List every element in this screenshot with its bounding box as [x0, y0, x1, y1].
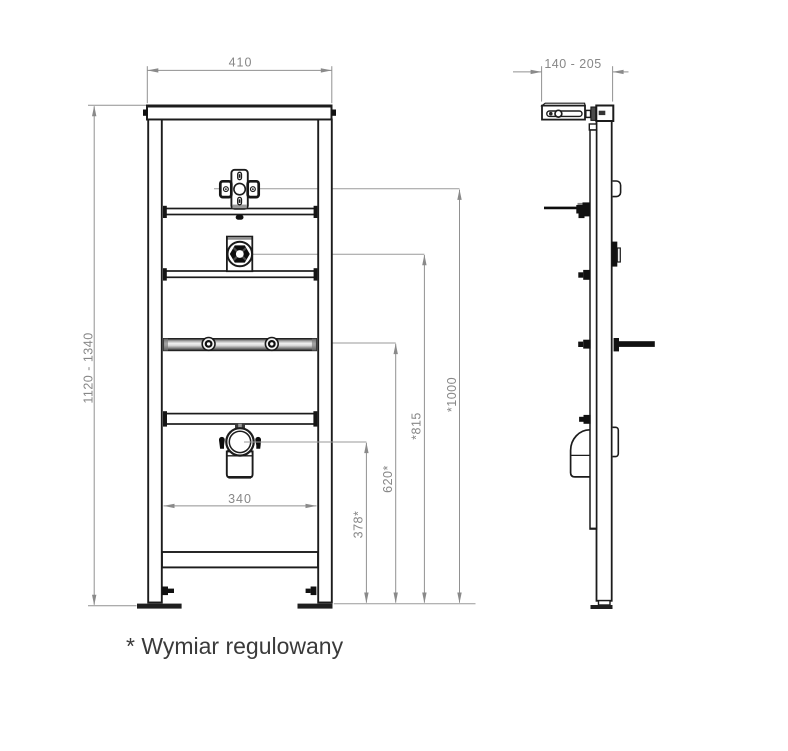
svg-text:340: 340 [228, 492, 252, 506]
svg-text:*815: *815 [410, 412, 424, 440]
svg-text:* Wymiar regulowany: * Wymiar regulowany [126, 633, 344, 659]
svg-text:378*: 378* [352, 511, 366, 539]
svg-text:*1000: *1000 [445, 377, 459, 412]
svg-text:140 - 205: 140 - 205 [544, 57, 601, 71]
svg-text:620*: 620* [381, 465, 395, 493]
svg-text:1120 - 1340: 1120 - 1340 [82, 332, 96, 403]
svg-text:410: 410 [229, 56, 253, 70]
